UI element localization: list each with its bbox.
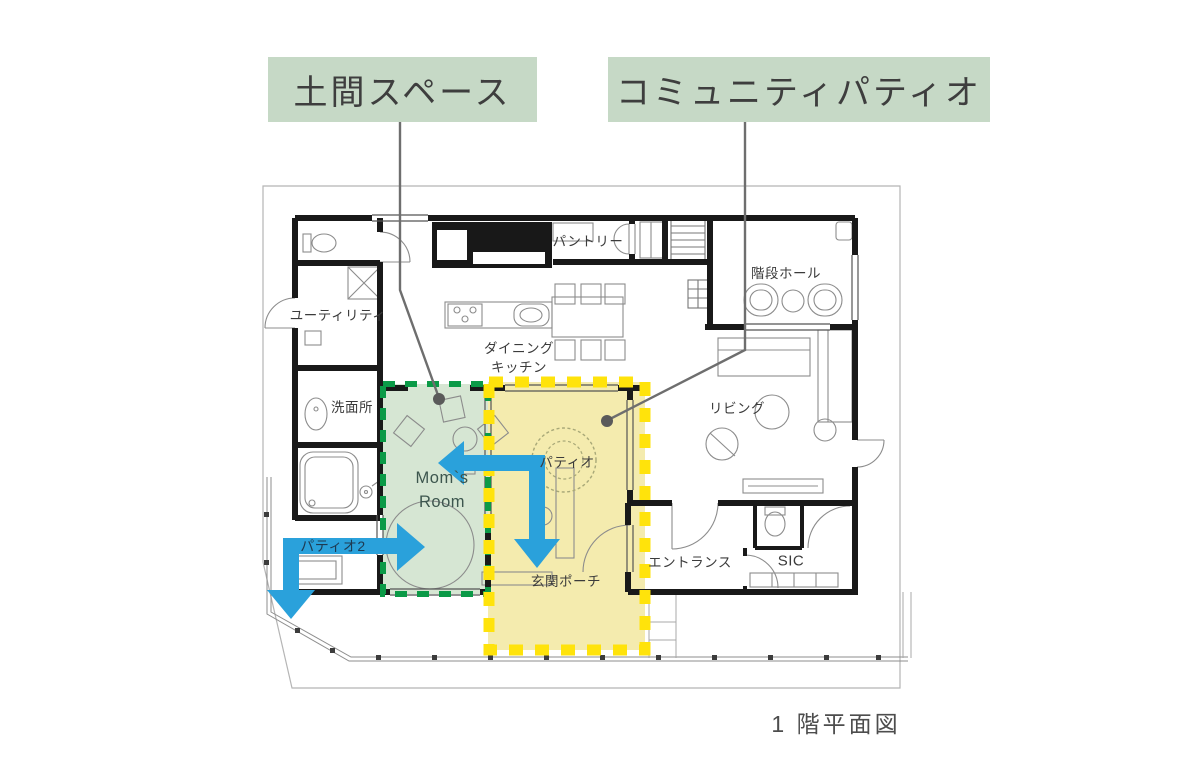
room-label-sic: SIC	[778, 553, 805, 570]
patio-zone-fill	[488, 382, 645, 650]
room-label-living: リビング	[709, 397, 765, 417]
leader-line-community-patio	[608, 122, 745, 420]
room-label-stair-hall: 階段ホール	[751, 262, 821, 282]
callout-doma-space-label: 土間スペース	[294, 65, 512, 114]
room-label-moms-room: Mom`s Room	[416, 466, 469, 514]
room-label-utility: ユーティリティ	[290, 304, 386, 324]
room-label-pantry: パントリー	[553, 230, 624, 250]
room-label-moms-room-line2: Room	[416, 490, 469, 514]
room-label-dining-kitchen: ダイニング キッチン	[484, 339, 554, 377]
room-label-entrance-porch: 玄関ポーチ	[531, 570, 601, 590]
callout-community-patio: コミュニティパティオ	[608, 57, 990, 122]
room-label-dining: ダイニング	[484, 339, 554, 358]
leader-dot-doma	[433, 393, 445, 405]
floor-plan-drawing	[0, 0, 1200, 760]
room-label-kitchen: キッチン	[484, 358, 554, 377]
callout-doma-space: 土間スペース	[268, 57, 537, 122]
room-label-washroom: 洗面所	[331, 396, 373, 416]
floor-plan-figure: 土間スペース コミュニティパティオ ユーティリティ パントリー ダイニング キッ…	[0, 0, 1200, 760]
plan-caption: 1 階平面図	[771, 705, 900, 739]
room-label-entrance: エントランス	[648, 551, 732, 571]
callout-community-patio-label: コミュニティパティオ	[616, 65, 982, 114]
room-label-moms-room-line1: Mom`s	[416, 466, 469, 490]
room-label-patio2: パティオ2	[300, 536, 365, 556]
leader-dot-community-patio	[601, 415, 613, 427]
room-label-patio: パティオ	[539, 451, 594, 471]
